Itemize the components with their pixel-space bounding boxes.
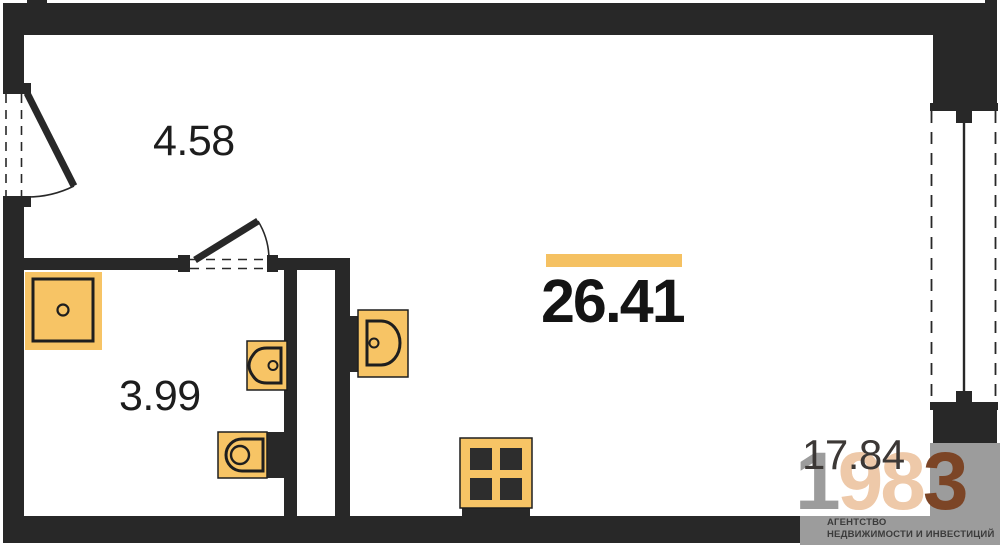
entrance-door: [6, 93, 74, 197]
hallway-area-label: 4.58: [153, 120, 235, 163]
shaft-wall-right: [335, 258, 350, 516]
stove-burner: [500, 478, 522, 500]
exterior-wall-left-upper: [3, 8, 24, 86]
stove-mount: [462, 508, 530, 518]
exterior-wall-left-lower: [3, 207, 24, 543]
bathroom-door-leaf: [195, 221, 258, 260]
exterior-wall-top: [3, 3, 997, 35]
fixtures: [25, 272, 532, 518]
total-area-accent-bar: [546, 254, 682, 267]
kitchen-sink-mount: [348, 316, 358, 372]
stove-burner: [470, 448, 492, 470]
door-jamb: [178, 255, 190, 272]
window: [932, 111, 996, 402]
total-area-label: 26.41: [541, 271, 684, 332]
logo-tagline: АГЕНТСТВО НЕДВИЖИМОСТИ И ИНВЕСТИЦИЙ: [827, 517, 994, 540]
window-mullion-top: [956, 111, 972, 123]
shower-drain: [58, 305, 69, 316]
stove-icon: [460, 438, 532, 518]
shower-tray-icon: [25, 272, 102, 350]
wall-tab-top-left: [27, 0, 47, 8]
toilet-icon: [218, 432, 287, 478]
exterior-wall-bottom: [3, 516, 800, 543]
toilet-tank: [267, 432, 287, 478]
entrance-door-jamb: [3, 196, 31, 207]
bathroom-area-label: 3.99: [119, 375, 201, 418]
logo-tagline-line1: АГЕНТСТВО: [827, 517, 994, 529]
kitchen-sink-icon: [348, 310, 408, 377]
partition-wall-left-segment: [3, 258, 178, 270]
pillar-top-right: [933, 35, 997, 103]
stove-burner: [500, 448, 522, 470]
bathroom-sink-icon: [247, 341, 287, 390]
entrance-door-jamb: [3, 83, 31, 94]
window-sill-bottom: [930, 402, 998, 410]
entrance-door-leaf: [27, 93, 74, 186]
bathroom-door-swing-arc: [258, 221, 269, 260]
bathroom-sink-faucet: [269, 361, 278, 370]
bathroom-door: [190, 221, 269, 269]
toilet-flush: [231, 446, 249, 464]
shaft-wall-left: [284, 270, 297, 516]
kitchen-sink-faucet: [370, 339, 379, 348]
stove-burner: [470, 478, 492, 500]
living-room-area-label: 17.84: [802, 434, 905, 476]
logo-tagline-line2: НЕДВИЖИМОСТИ И ИНВЕСТИЦИЙ: [827, 529, 994, 541]
window-sill-top: [930, 103, 998, 111]
wall-tab-top-right: [985, 0, 997, 8]
floorplan-page: 26.41 4.58 3.99 17.84 1 9 8 3 АГЕНТСТВО …: [0, 0, 1000, 550]
logo-digit: 3: [923, 441, 966, 523]
entrance-door-swing-arc: [27, 186, 74, 197]
window-mullion-bottom: [956, 391, 972, 402]
